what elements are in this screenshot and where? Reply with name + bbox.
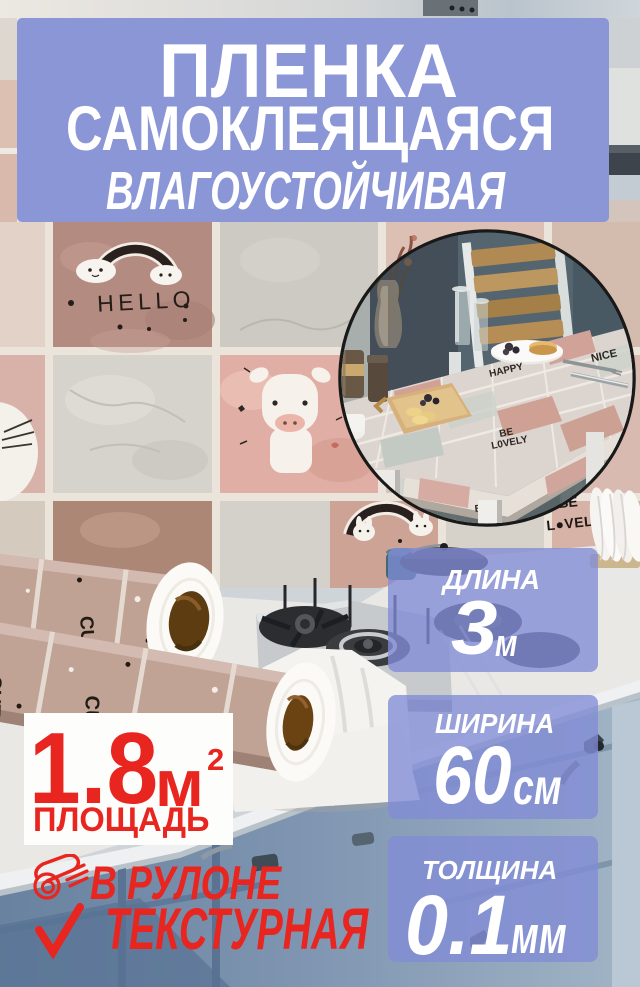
svg-text:CUT: CUT [0, 675, 5, 717]
svg-text:HELLO: HELLO [96, 286, 195, 317]
